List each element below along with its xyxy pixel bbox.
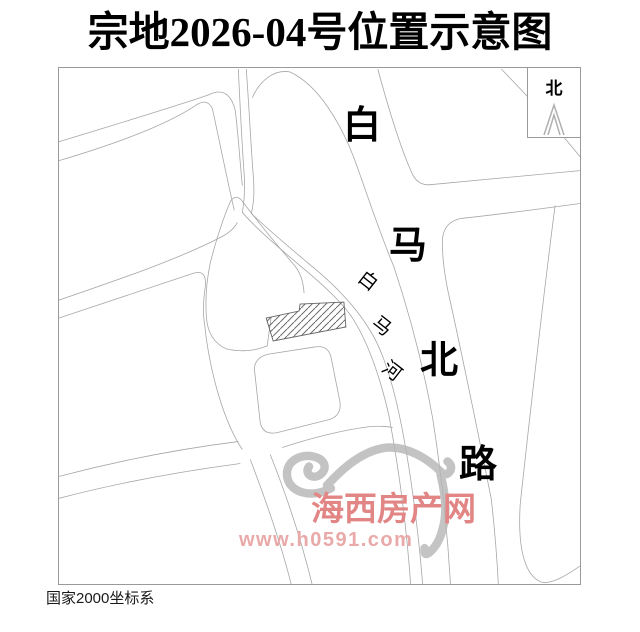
map-frame: 白 马 北 路 白 马 河 北 海西房产网 www.h0591.com [58, 67, 581, 585]
north-label: 北 [528, 74, 580, 99]
coordinate-system-note: 国家2000坐标系 [46, 587, 154, 608]
parcel-highlight [266, 302, 346, 341]
road-name-char: 路 [459, 446, 497, 484]
watermark-site-name: 海西房产网 [311, 492, 476, 527]
road-name-char: 马 [389, 227, 427, 265]
north-indicator: 北 [527, 68, 580, 138]
road-name-char: 白 [343, 107, 381, 145]
road-name-char: 北 [420, 342, 458, 380]
page-title: 宗地2026-04号位置示意图 [0, 10, 640, 55]
parcel-location-diagram: 宗地2026-04号位置示意图 [0, 0, 640, 632]
north-arrow-icon [528, 99, 580, 139]
watermark-site-url: www.h0591.com [239, 529, 413, 552]
